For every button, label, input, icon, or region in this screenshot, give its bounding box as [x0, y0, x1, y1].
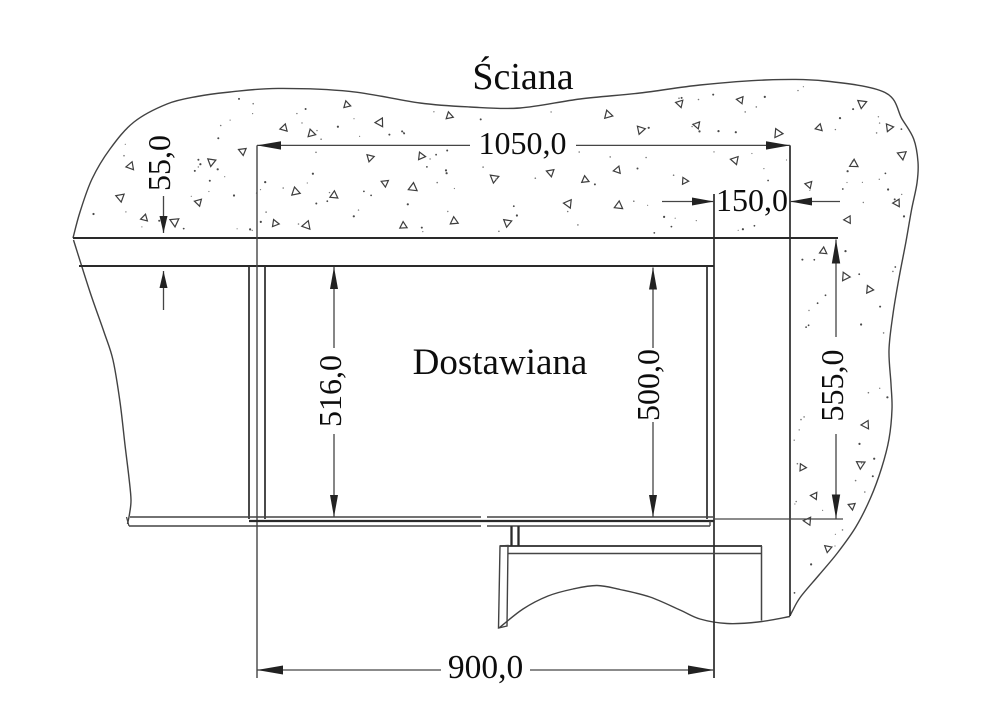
svg-text:150,0: 150,0: [716, 182, 788, 218]
svg-text:Dostawiana: Dostawiana: [413, 342, 588, 383]
svg-text:Ściana: Ściana: [472, 56, 573, 98]
svg-text:900,0: 900,0: [448, 649, 523, 686]
svg-text:55,0: 55,0: [141, 135, 177, 191]
svg-text:516,0: 516,0: [312, 355, 348, 427]
svg-text:500,0: 500,0: [630, 349, 666, 421]
svg-text:555,0: 555,0: [814, 350, 850, 422]
svg-text:1050,0: 1050,0: [479, 125, 567, 161]
